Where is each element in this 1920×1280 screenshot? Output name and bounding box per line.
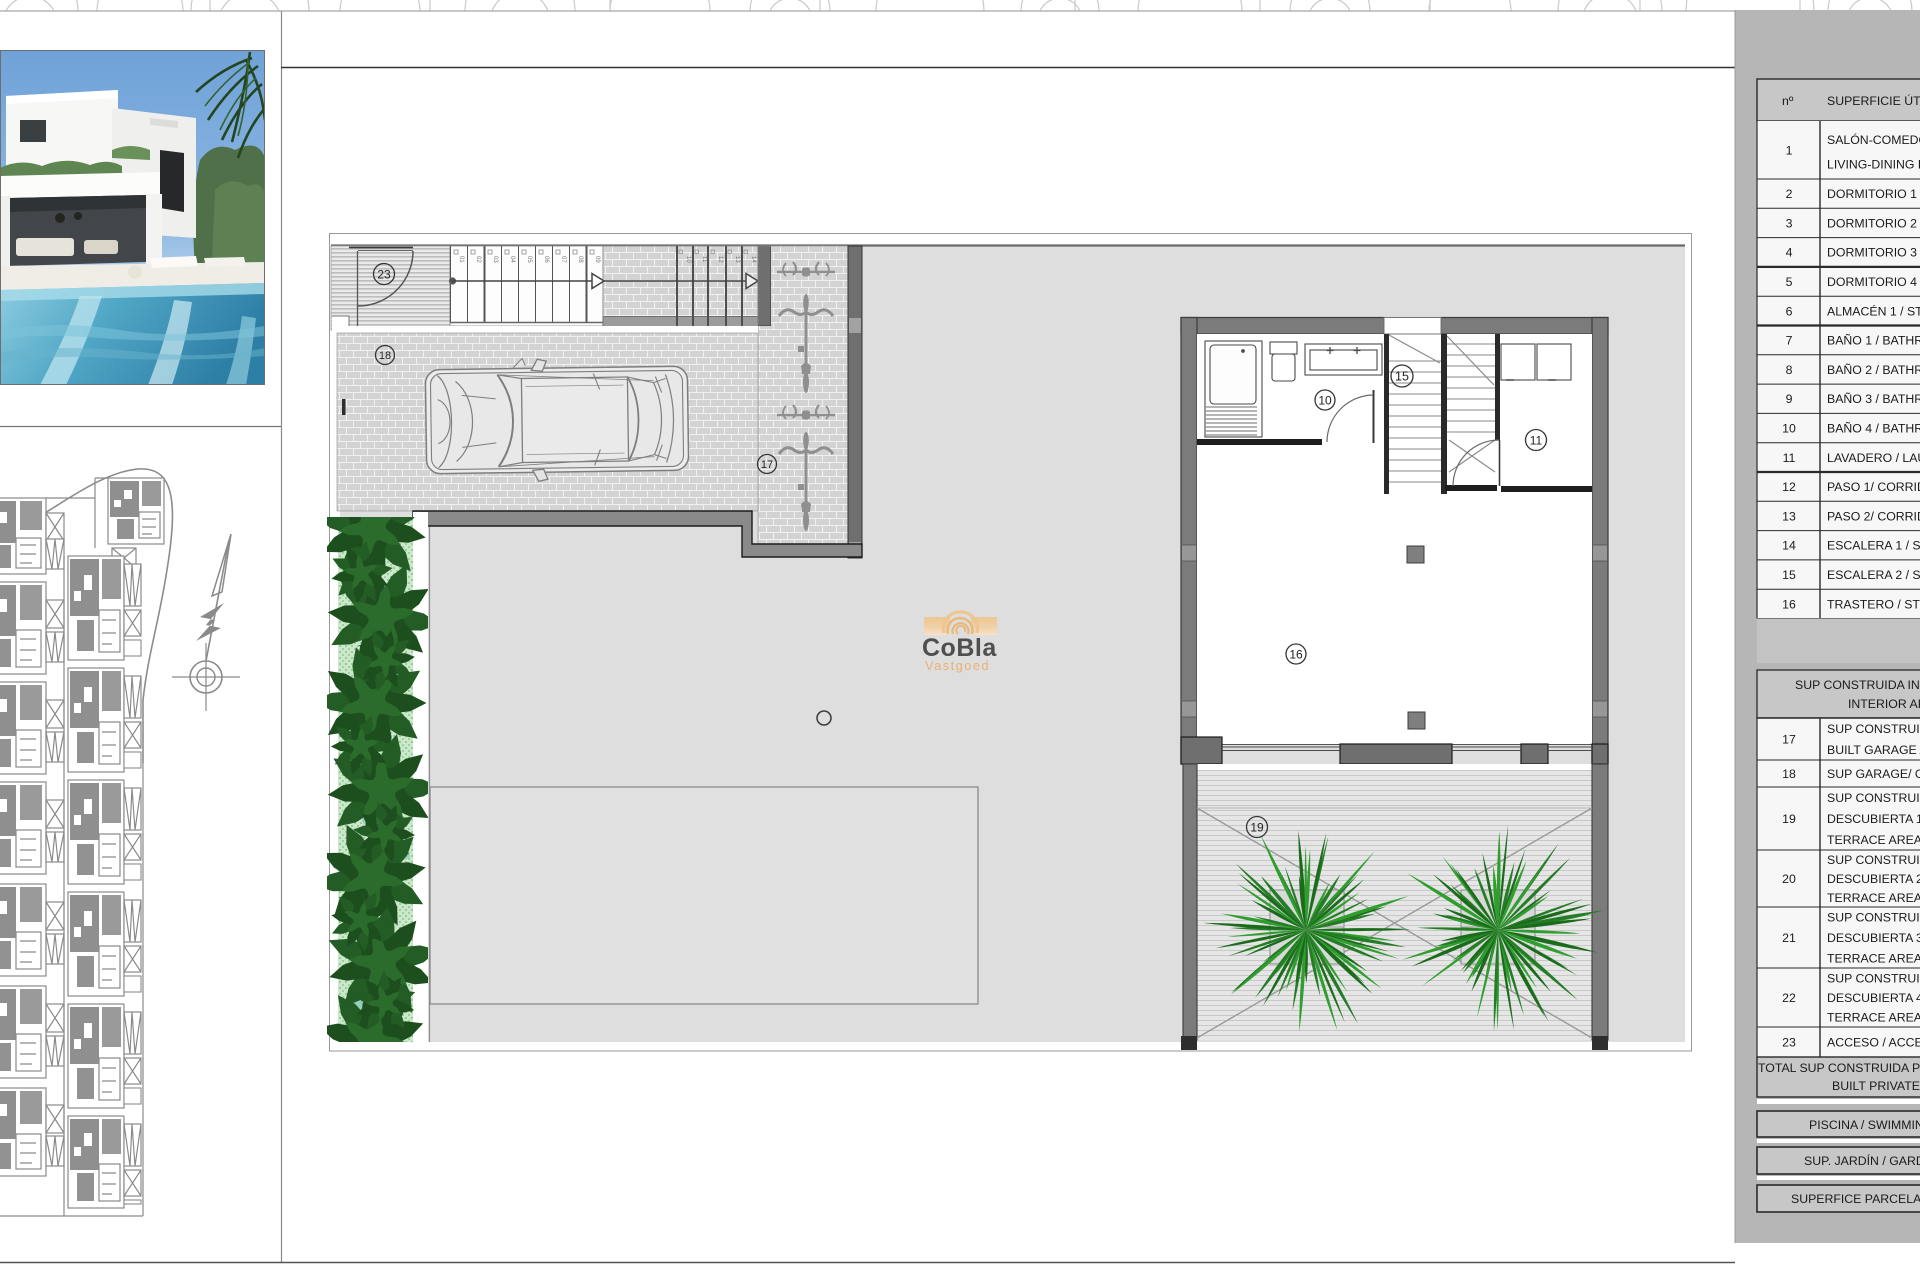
svg-text:6: 6 <box>1786 304 1793 318</box>
svg-text:DORMITORIO 1 / BEDROOM 1: DORMITORIO 1 / BEDROOM 1 <box>1827 187 1920 201</box>
svg-text:TRASTERO / STORAGE: TRASTERO / STORAGE <box>1827 597 1920 611</box>
svg-text:nº: nº <box>1782 94 1794 108</box>
svg-text:07: 07 <box>560 256 566 263</box>
svg-text:TERRACE AREA 1: TERRACE AREA 1 <box>1827 833 1920 847</box>
svg-text:5: 5 <box>1786 275 1793 289</box>
svg-text:11: 11 <box>701 256 707 263</box>
svg-text:10: 10 <box>1782 422 1796 436</box>
svg-text:PASO 1/ CORRIDOR 1: PASO 1/ CORRIDOR 1 <box>1827 480 1920 494</box>
svg-text:01: 01 <box>458 256 464 263</box>
svg-text:ESCALERA 1 / STAIRS 1: ESCALERA 1 / STAIRS 1 <box>1827 539 1920 553</box>
svg-text:BAÑO 1 / BATHROOM 1: BAÑO 1 / BATHROOM 1 <box>1827 334 1920 348</box>
svg-text:23: 23 <box>1782 1035 1796 1049</box>
svg-text:03: 03 <box>492 256 498 263</box>
svg-text:ACCESO / ACCESS: ACCESO / ACCESS <box>1827 1035 1920 1049</box>
svg-text:TERRACE AREA 2: TERRACE AREA 2 <box>1827 891 1920 905</box>
svg-text:11: 11 <box>1783 451 1796 465</box>
svg-text:8: 8 <box>1786 363 1793 377</box>
svg-text:PISCINA / SWIMMING POOL: PISCINA / SWIMMING POOL <box>1809 1118 1920 1132</box>
svg-text:TOTAL SUP CONSTRUIDA PRIVADA /: TOTAL SUP CONSTRUIDA PRIVADA / <box>1758 1061 1920 1075</box>
svg-text:BUILT PRIVATE AREA: BUILT PRIVATE AREA <box>1832 1079 1920 1093</box>
svg-text:12: 12 <box>1782 480 1796 494</box>
svg-text:06: 06 <box>543 256 549 263</box>
svg-text:SUP. JARDÍN / GARDEN AREA: SUP. JARDÍN / GARDEN AREA <box>1804 1153 1920 1168</box>
svg-text:SUP CONSTRUIDA TERRAZA: SUP CONSTRUIDA TERRAZA <box>1827 853 1920 867</box>
svg-text:7: 7 <box>1786 334 1793 348</box>
svg-text:DESCUBIERTA 4 / OPEN: DESCUBIERTA 4 / OPEN <box>1827 991 1920 1005</box>
svg-text:SALÓN-COMEDOR /: SALÓN-COMEDOR / <box>1827 132 1920 147</box>
svg-text:DORMITORIO 3 / BEDROOM 3: DORMITORIO 3 / BEDROOM 3 <box>1827 246 1920 260</box>
svg-text:17: 17 <box>1782 732 1796 746</box>
svg-text:17: 17 <box>761 459 773 471</box>
svg-text:20: 20 <box>1782 872 1796 886</box>
svg-text:12: 12 <box>717 256 723 263</box>
svg-text:DESCUBIERTA 1 / OPEN: DESCUBIERTA 1 / OPEN <box>1827 812 1920 826</box>
svg-text:23: 23 <box>377 267 391 281</box>
svg-text:INTERIOR AREA: INTERIOR AREA <box>1848 697 1920 711</box>
svg-text:10: 10 <box>1318 393 1332 407</box>
svg-text:2: 2 <box>1786 187 1793 201</box>
svg-text:22: 22 <box>1782 991 1796 1005</box>
svg-text:SUP CONSTRUIDA INTERIOR /: SUP CONSTRUIDA INTERIOR / <box>1795 678 1920 692</box>
svg-text:3: 3 <box>1786 216 1793 230</box>
svg-text:10: 10 <box>685 256 691 263</box>
svg-text:BAÑO 3 / BATHROOM 3: BAÑO 3 / BATHROOM 3 <box>1827 392 1920 406</box>
svg-text:SUP GARAGE/ GARAGE AREA: SUP GARAGE/ GARAGE AREA <box>1827 767 1920 781</box>
svg-text:16: 16 <box>1289 647 1303 661</box>
svg-text:SUPERFICIE ÚTIL / USEFUL AREA: SUPERFICIE ÚTIL / USEFUL AREA <box>1827 93 1920 108</box>
svg-text:16: 16 <box>1782 597 1796 611</box>
svg-text:BAÑO 4 / BATHROOM 4: BAÑO 4 / BATHROOM 4 <box>1827 422 1920 436</box>
svg-text:ESCALERA 2 / STAIRS 2: ESCALERA 2 / STAIRS 2 <box>1827 568 1920 582</box>
svg-text:BAÑO 2 / BATHROOM 2: BAÑO 2 / BATHROOM 2 <box>1827 363 1920 377</box>
svg-text:18: 18 <box>379 350 391 362</box>
svg-text:TERRACE AREA 3: TERRACE AREA 3 <box>1827 951 1920 965</box>
svg-text:DESCUBIERTA 2 / OPEN: DESCUBIERTA 2 / OPEN <box>1827 872 1920 886</box>
svg-text:09: 09 <box>594 256 600 263</box>
svg-text:LAVADERO / LAUNDRY: LAVADERO / LAUNDRY <box>1827 451 1920 465</box>
svg-text:Vastgoed: Vastgoed <box>925 658 990 673</box>
svg-text:13: 13 <box>734 256 740 263</box>
svg-text:SUP CONSTRUIDA TERRAZA: SUP CONSTRUIDA TERRAZA <box>1827 971 1920 985</box>
svg-text:11: 11 <box>1530 433 1543 447</box>
svg-text:ALMACÉN 1 / STORAGE 1: ALMACÉN 1 / STORAGE 1 <box>1827 303 1920 318</box>
svg-text:4: 4 <box>1786 246 1793 260</box>
svg-text:18: 18 <box>1782 767 1796 781</box>
svg-text:04: 04 <box>509 256 515 263</box>
svg-text:15: 15 <box>1395 370 1409 384</box>
svg-text:05: 05 <box>526 256 532 263</box>
svg-text:SUP CONSTRUIDA GARAJE /: SUP CONSTRUIDA GARAJE / <box>1827 722 1920 736</box>
svg-text:TERRACE AREA 4: TERRACE AREA 4 <box>1827 1011 1920 1025</box>
svg-text:PASO 2/ CORRIDOR 2: PASO 2/ CORRIDOR 2 <box>1827 509 1920 523</box>
svg-text:BUILT GARAGE AREA: BUILT GARAGE AREA <box>1827 743 1920 757</box>
svg-text:19: 19 <box>1782 812 1796 826</box>
svg-text:SUP CONSTRUIDA TERRAZA: SUP CONSTRUIDA TERRAZA <box>1827 791 1920 805</box>
svg-text:SUPERFICE PARCELA / PLOT AREA: SUPERFICE PARCELA / PLOT AREA <box>1791 1192 1920 1206</box>
svg-text:08: 08 <box>577 256 583 263</box>
svg-text:SUP CONSTRUIDA TERRAZA: SUP CONSTRUIDA TERRAZA <box>1827 911 1920 925</box>
svg-text:LIVING-DINING ROOM: LIVING-DINING ROOM <box>1827 157 1920 171</box>
svg-text:13: 13 <box>1782 509 1796 523</box>
svg-text:21: 21 <box>1782 931 1796 945</box>
svg-text:19: 19 <box>1250 820 1264 834</box>
svg-text:02: 02 <box>475 256 481 263</box>
svg-text:1: 1 <box>1786 143 1793 157</box>
svg-text:DORMITORIO 4 / BEDROOM 4: DORMITORIO 4 / BEDROOM 4 <box>1827 275 1920 289</box>
svg-text:DESCUBIERTA 3 / OPEN: DESCUBIERTA 3 / OPEN <box>1827 931 1920 945</box>
svg-text:9: 9 <box>1786 392 1793 406</box>
svg-text:14: 14 <box>1782 539 1796 553</box>
svg-text:14: 14 <box>750 256 756 263</box>
svg-text:DORMITORIO 2 / BEDROOM 2: DORMITORIO 2 / BEDROOM 2 <box>1827 216 1920 230</box>
svg-text:15: 15 <box>1782 568 1796 582</box>
